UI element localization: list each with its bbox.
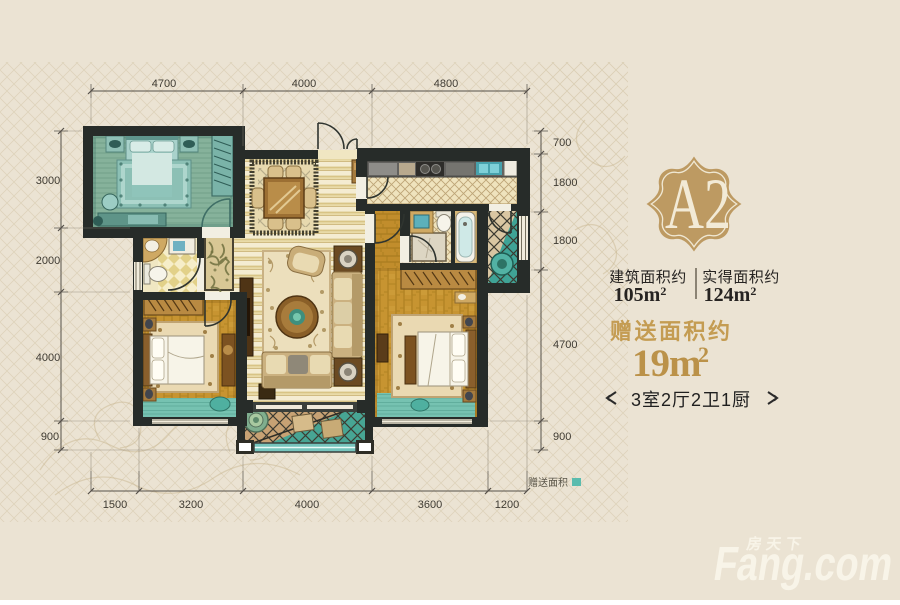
svg-text:3600: 3600 [418,499,442,511]
svg-text:900: 900 [553,431,571,443]
svg-text:4700: 4700 [152,78,176,90]
svg-text:124m2: 124m2 [704,284,757,306]
svg-text:105m2: 105m2 [614,284,667,306]
svg-text:1800: 1800 [553,177,577,189]
svg-text:A2: A2 [665,164,731,244]
svg-text:3室2厅2卫1厨: 3室2厅2卫1厨 [631,390,751,410]
svg-text:2000: 2000 [36,255,60,267]
svg-text:赠送面积约: 赠送面积约 [610,319,733,344]
svg-text:Fang.com: Fang.com [710,537,896,591]
svg-text:1800: 1800 [553,235,577,247]
svg-text:1500: 1500 [103,499,127,511]
svg-text:4700: 4700 [553,339,577,351]
svg-text:4800: 4800 [434,78,458,90]
svg-text:3200: 3200 [179,499,203,511]
svg-text:4000: 4000 [36,352,60,364]
svg-text:赠送面积: 赠送面积 [528,476,568,489]
svg-text:19m: 19m [632,342,701,385]
svg-text:2: 2 [698,342,709,367]
svg-text:4000: 4000 [292,78,316,90]
svg-text:1200: 1200 [495,499,519,511]
svg-text:700: 700 [553,137,571,149]
svg-text:3000: 3000 [36,175,60,187]
svg-text:900: 900 [41,431,59,443]
svg-text:4000: 4000 [295,499,319,511]
